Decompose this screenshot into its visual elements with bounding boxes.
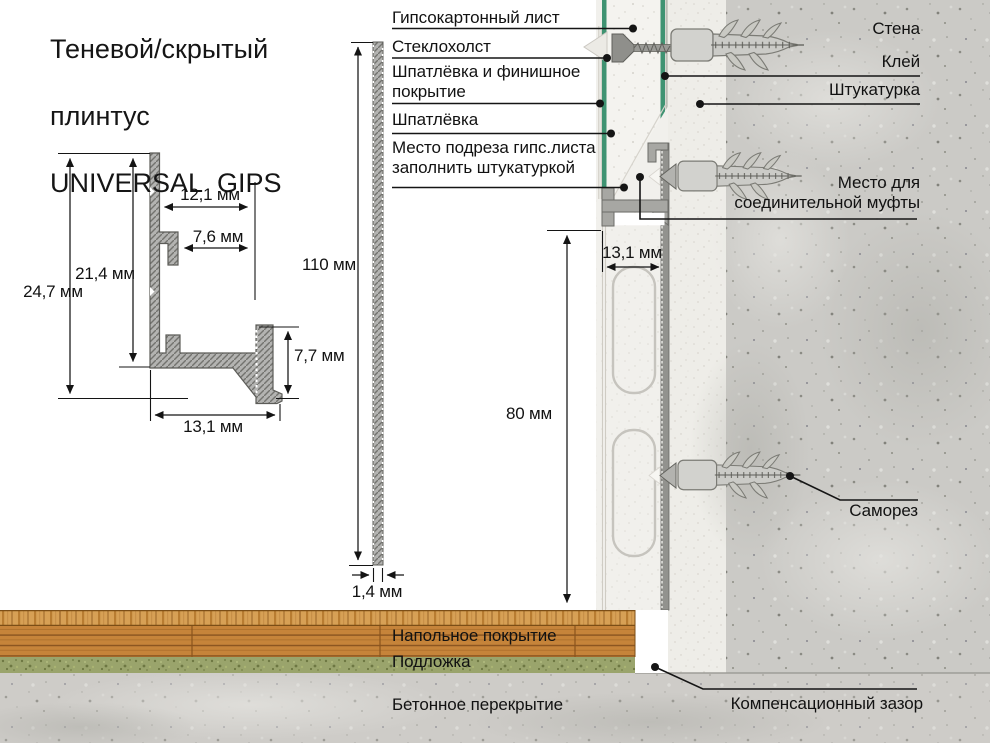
title-line-2: плинтус bbox=[50, 101, 150, 131]
dimension-width-hook: 7,6 мм bbox=[186, 228, 250, 246]
label-expansion-gap: Компенсационный зазор bbox=[731, 694, 923, 714]
dimension-width-top: 12,1 мм bbox=[178, 186, 242, 204]
page: Теневой/скрытый плинтус UNIVERSAL GIPS Г… bbox=[0, 0, 990, 743]
label-drywall: Гипсокартонный лист bbox=[392, 8, 560, 28]
dimension-strip-thickness: 1,4 мм bbox=[346, 583, 408, 601]
mounting-strip-section bbox=[373, 42, 383, 565]
label-flooring: Напольное покрытие bbox=[392, 626, 557, 646]
label-underlay: Подложка bbox=[392, 652, 470, 672]
dimension-wall-gap-height: 80 мм bbox=[498, 405, 552, 423]
page-title: Теневой/скрытый плинтус UNIVERSAL GIPS bbox=[50, 33, 282, 201]
title-line-3: UNIVERSAL GIPS bbox=[50, 168, 282, 198]
dimension-width-base: 13,1 мм bbox=[180, 418, 246, 436]
dimension-height-right: 7,7 мм bbox=[294, 347, 345, 365]
dimension-height-inner: 21,4 мм bbox=[70, 265, 140, 283]
label-wall: Стена bbox=[872, 19, 920, 39]
label-putty: Шпатлёвка bbox=[392, 110, 478, 130]
plaster-layer bbox=[668, 0, 726, 673]
label-screw: Саморез bbox=[849, 501, 918, 521]
label-cut-area: Место подреза гипс.листа заполнить штука… bbox=[392, 138, 604, 177]
label-slab: Бетонное перекрытие bbox=[392, 695, 563, 715]
label-fiberglass: Стеклохолст bbox=[392, 37, 491, 57]
title-line-1: Теневой/скрытый bbox=[50, 34, 268, 64]
dimension-wall-base-width: 13,1 мм bbox=[600, 244, 664, 262]
underlay-layer bbox=[0, 657, 635, 673]
dimension-strip-height: 110 мм bbox=[296, 256, 356, 274]
dimension-height-total: 24,7 мм bbox=[4, 283, 102, 301]
label-putty-finish: Шпатлёвка и финишное покрытие bbox=[392, 62, 592, 101]
label-glue: Клей bbox=[882, 52, 920, 72]
concrete-wall bbox=[690, 0, 990, 673]
label-coupling: Место для соединительной муфты bbox=[720, 173, 920, 212]
expansion-gap bbox=[635, 610, 668, 673]
label-plaster: Штукатурка bbox=[829, 80, 920, 100]
